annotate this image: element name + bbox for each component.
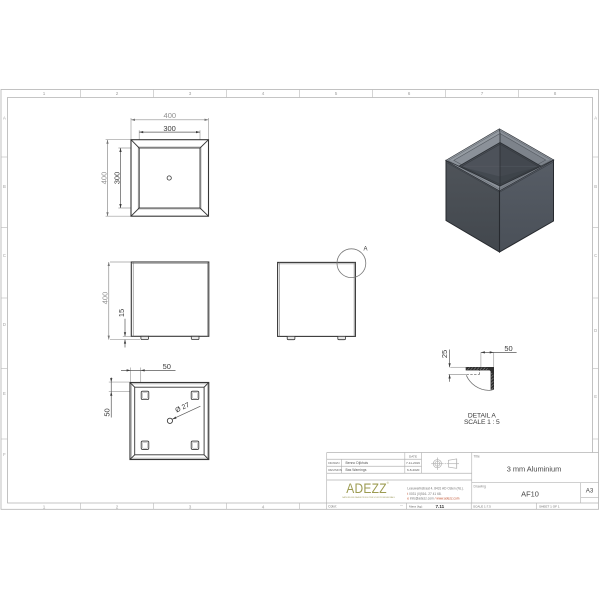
svg-text:4: 4: [262, 91, 265, 96]
svg-text:Benno Dijkhuis: Benno Dijkhuis: [346, 461, 369, 465]
svg-text:3: 3: [189, 504, 192, 509]
svg-text:t 0031 (0)516- 27 41 68.: t 0031 (0)516- 27 41 68.: [407, 492, 441, 496]
svg-text:7-11-2019: 7-11-2019: [406, 461, 420, 465]
svg-text:50: 50: [163, 362, 171, 371]
svg-text:e info@adezz.com / www.adezz.c: e info@adezz.com / www.adezz.com: [407, 496, 459, 500]
svg-text:400: 400: [99, 172, 108, 185]
svg-text:300: 300: [163, 124, 176, 133]
svg-text:···: ···: [400, 504, 403, 508]
svg-text:SCALE 1:7.5: SCALE 1:7.5: [473, 505, 491, 509]
svg-text:4: 4: [262, 504, 265, 509]
svg-text:6-8-2020: 6-8-2020: [407, 468, 420, 472]
svg-text:Drawing: Drawing: [474, 485, 487, 489]
svg-text:Bas Warnings: Bas Warnings: [346, 468, 367, 472]
svg-text:400: 400: [164, 111, 177, 120]
svg-text:C: C: [3, 253, 6, 258]
svg-text:A3: A3: [586, 487, 594, 494]
svg-text:1: 1: [43, 91, 46, 96]
svg-text:5: 5: [335, 91, 338, 96]
svg-text:DRAWN: DRAWN: [328, 461, 339, 465]
svg-text:A: A: [594, 116, 597, 121]
svg-text:REVISION: REVISION: [328, 468, 342, 472]
svg-text:SCALE 1 : 5: SCALE 1 : 5: [464, 419, 500, 426]
svg-text:C: C: [594, 253, 597, 258]
svg-text:SHEET 1 OF 1: SHEET 1 OF 1: [539, 505, 560, 509]
svg-text:B: B: [594, 184, 597, 189]
svg-text:Color:: Color:: [328, 505, 337, 509]
svg-text:8: 8: [554, 91, 557, 96]
svg-text:NATUURLIJKE ZAKEN PRODUCTEN VO: NATUURLIJKE ZAKEN PRODUCTEN VOOR PROFESS…: [342, 496, 395, 499]
svg-text:25: 25: [440, 350, 449, 358]
svg-text:300: 300: [113, 172, 122, 185]
svg-text:B: B: [3, 184, 6, 189]
svg-text:D: D: [3, 322, 6, 327]
svg-text:Title: Title: [474, 455, 480, 459]
svg-text:50: 50: [504, 344, 512, 353]
svg-text:2: 2: [116, 504, 119, 509]
svg-text:Leeuwerikstraat 4, 8431 AD Osl: Leeuwerikstraat 4, 8431 AD Oslen (NL).: [407, 487, 463, 491]
svg-text:AF10: AF10: [521, 489, 539, 498]
svg-text:A: A: [364, 247, 368, 253]
svg-text:6: 6: [408, 91, 411, 96]
svg-text:E: E: [3, 391, 6, 396]
svg-text:DATE: DATE: [409, 455, 417, 459]
svg-text:A: A: [3, 116, 6, 121]
svg-text:Mass (kg):: Mass (kg):: [409, 505, 423, 509]
svg-text:D: D: [594, 328, 597, 333]
svg-text:50: 50: [102, 408, 111, 416]
svg-text:15: 15: [117, 309, 126, 317]
svg-text:1: 1: [43, 504, 46, 509]
svg-text:3: 3: [189, 91, 192, 96]
svg-text:F: F: [3, 452, 6, 457]
svg-text:7: 7: [481, 91, 484, 96]
svg-text:3 mm Aluminium: 3 mm Aluminium: [507, 464, 562, 473]
svg-text:400: 400: [101, 292, 110, 305]
svg-text:7.11: 7.11: [436, 504, 445, 509]
svg-text:2: 2: [116, 91, 119, 96]
svg-text:E: E: [594, 394, 597, 399]
svg-text:ADEZZ: ADEZZ: [346, 480, 387, 496]
